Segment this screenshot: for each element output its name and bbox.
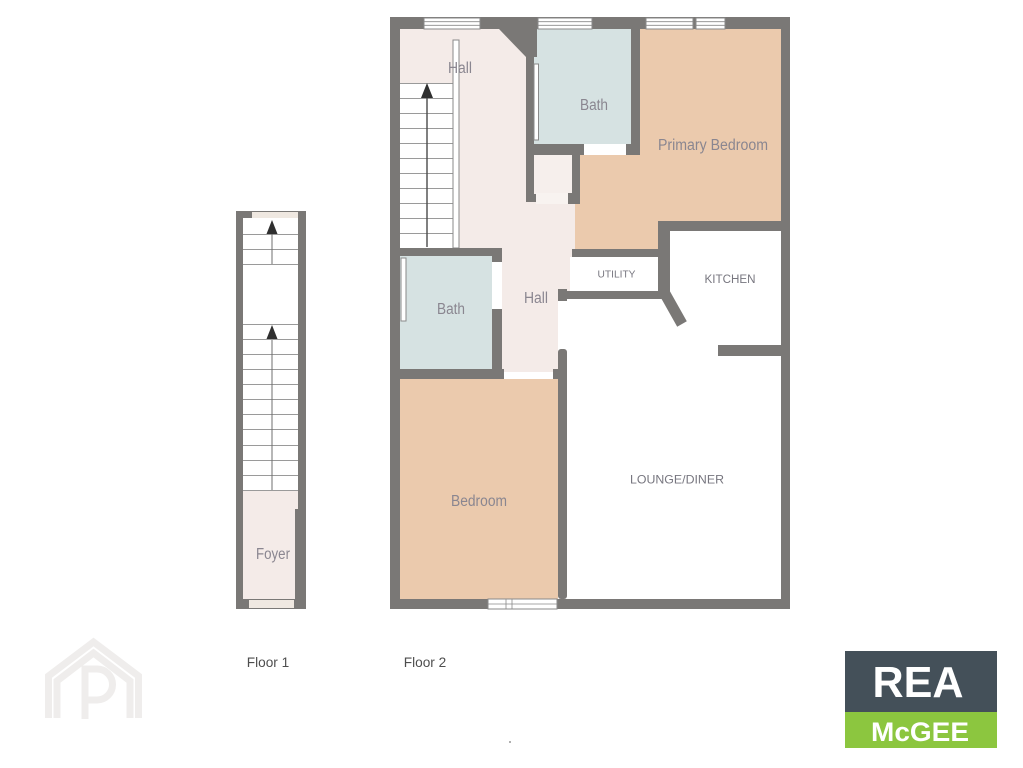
- svg-text:Bath: Bath: [580, 97, 608, 114]
- svg-text:Floor 1: Floor 1: [247, 655, 290, 670]
- svg-text:McGEE: McGEE: [871, 717, 969, 747]
- svg-text:Foyer: Foyer: [256, 546, 290, 563]
- svg-text:KITCHEN: KITCHEN: [705, 274, 756, 286]
- svg-text:REA: REA: [873, 658, 964, 707]
- svg-text:LOUNGE/DINER: LOUNGE/DINER: [630, 473, 724, 487]
- svg-text:Hall: Hall: [448, 60, 472, 77]
- svg-text:Floor 2: Floor 2: [404, 655, 447, 670]
- svg-text:Bath: Bath: [437, 301, 465, 318]
- svg-text:UTILITY: UTILITY: [598, 270, 636, 281]
- svg-text:Primary Bedroom: Primary Bedroom: [658, 137, 768, 154]
- svg-text:Bedroom: Bedroom: [451, 493, 507, 510]
- svg-text:Hall: Hall: [524, 290, 548, 307]
